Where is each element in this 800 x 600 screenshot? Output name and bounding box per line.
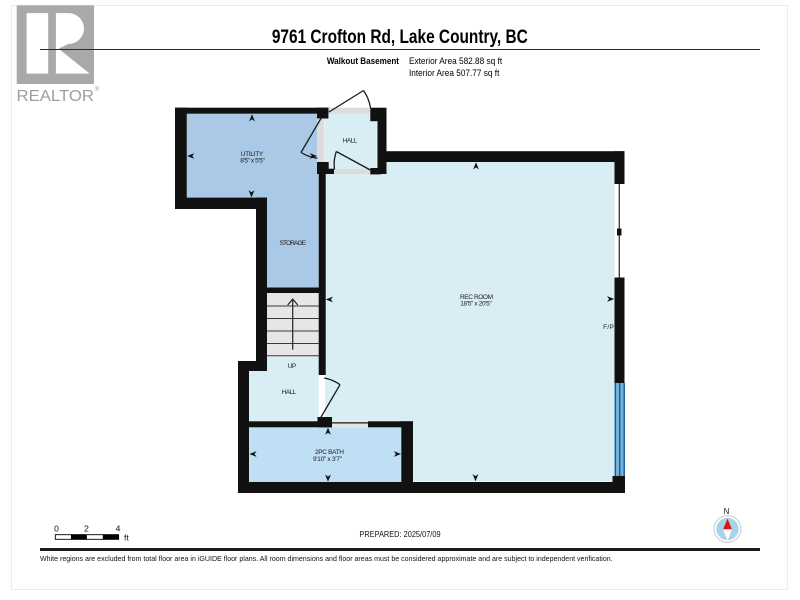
svg-text:9'10" x 3'7": 9'10" x 3'7": [313, 456, 343, 463]
svg-text:HALL: HALL: [343, 138, 358, 145]
svg-text:HALL: HALL: [282, 389, 297, 396]
svg-text:8'5" x 5'5": 8'5" x 5'5": [240, 158, 265, 165]
svg-text:2PC BATH: 2PC BATH: [315, 449, 344, 456]
svg-text:F/P: F/P: [603, 324, 614, 331]
svg-text:UP: UP: [288, 363, 297, 370]
svg-text:18'5" x 20'5": 18'5" x 20'5": [460, 301, 492, 308]
svg-text:N: N: [724, 507, 730, 516]
svg-text:0: 0: [54, 524, 59, 534]
svg-text:STORAGE: STORAGE: [280, 240, 307, 247]
